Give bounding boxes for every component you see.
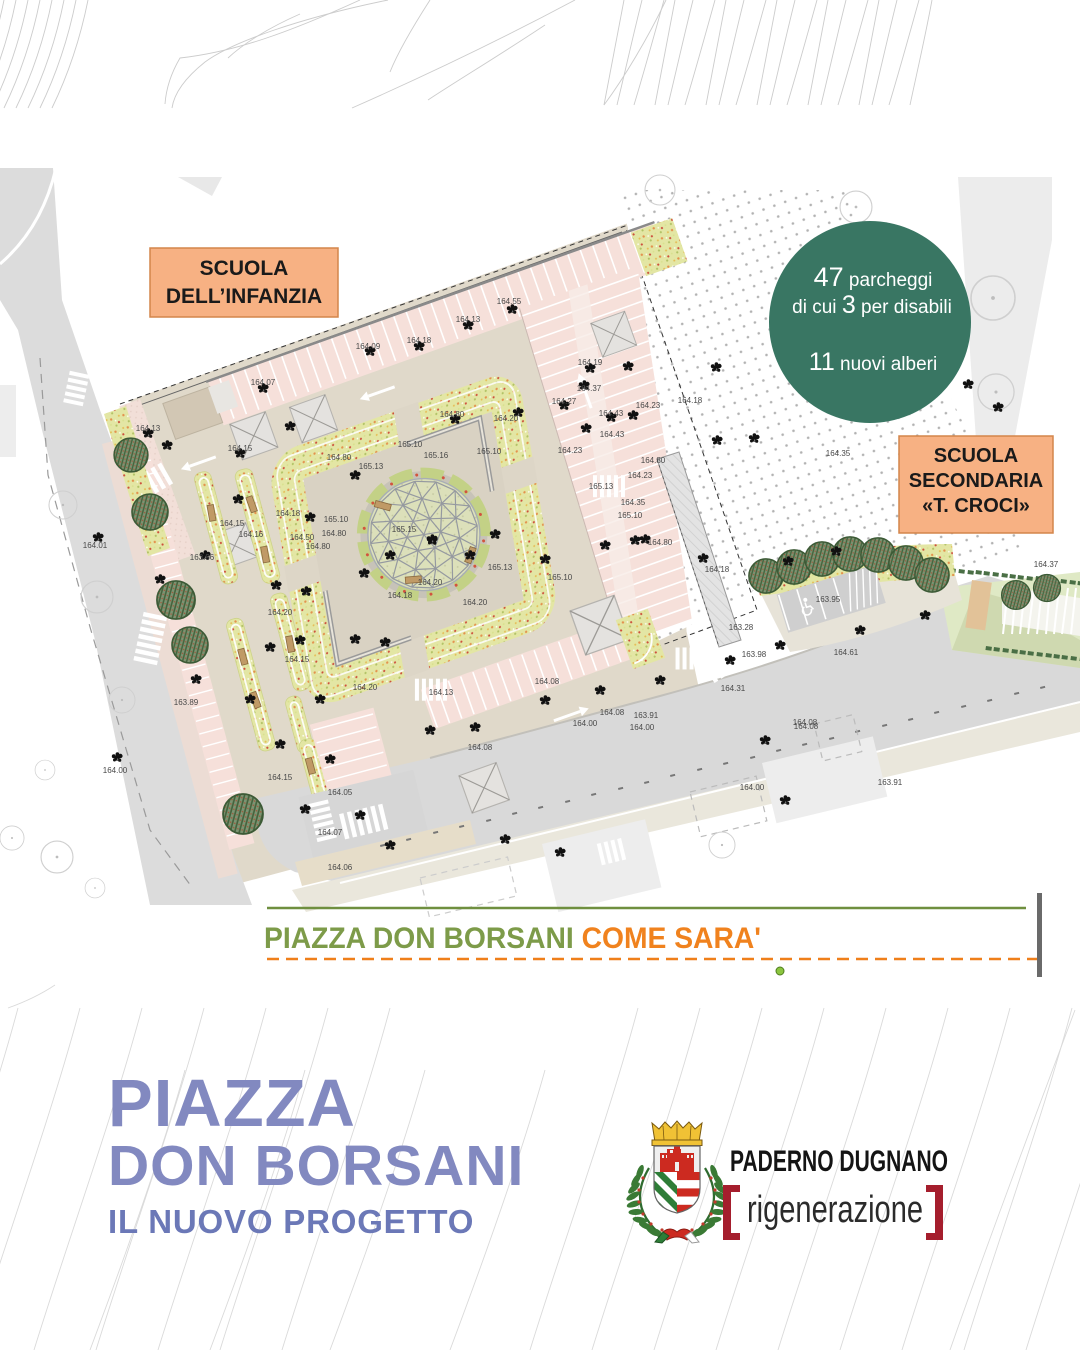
svg-text:163.96: 163.96 [190, 553, 215, 562]
svg-text:164.16: 164.16 [239, 530, 264, 539]
svg-text:164.23: 164.23 [558, 446, 583, 455]
svg-text:163.89: 163.89 [174, 698, 199, 707]
svg-text:165.13: 165.13 [589, 482, 614, 491]
svg-text:163.98: 163.98 [742, 650, 767, 659]
svg-text:164.08: 164.08 [600, 708, 625, 717]
svg-text:164.06: 164.06 [328, 863, 353, 872]
svg-text:164.08: 164.08 [535, 677, 560, 686]
svg-text:165.13: 165.13 [488, 563, 513, 572]
svg-text:164.23: 164.23 [636, 401, 661, 410]
svg-text:164.20: 164.20 [353, 683, 378, 692]
svg-text:164.13: 164.13 [456, 315, 481, 324]
svg-text:165.10: 165.10 [548, 573, 573, 582]
svg-text:164.00: 164.00 [740, 783, 765, 792]
svg-text:164.27: 164.27 [552, 397, 577, 406]
svg-text:164.13: 164.13 [429, 688, 454, 697]
svg-text:PADERNO DUGNANO: PADERNO DUGNANO [730, 1145, 948, 1178]
svg-text:164.07: 164.07 [318, 828, 343, 837]
svg-text:164.09: 164.09 [356, 342, 381, 351]
svg-text:164.43: 164.43 [600, 430, 625, 439]
svg-text:163.28: 163.28 [729, 623, 754, 632]
svg-text:164.20: 164.20 [418, 578, 443, 587]
svg-text:164.35: 164.35 [826, 449, 851, 458]
svg-text:164.15: 164.15 [285, 655, 310, 664]
svg-text:164.05: 164.05 [328, 788, 353, 797]
svg-text:164.80: 164.80 [306, 542, 331, 551]
svg-text:PIAZZA DON BORSANI COME SARA': PIAZZA DON BORSANI COME SARA' [264, 922, 761, 955]
svg-text:164.19: 164.19 [578, 358, 603, 367]
svg-text:«T. CROCI»: «T. CROCI» [922, 495, 1030, 517]
svg-text:164.15: 164.15 [220, 519, 245, 528]
svg-text:164.55: 164.55 [497, 297, 522, 306]
svg-text:164.18: 164.18 [407, 336, 432, 345]
svg-text:rigenerazione: rigenerazione [747, 1189, 923, 1231]
svg-text:164.35: 164.35 [621, 498, 646, 507]
svg-text:164.80: 164.80 [327, 453, 352, 462]
svg-text:164.61: 164.61 [834, 648, 859, 657]
svg-text:164.20: 164.20 [494, 414, 519, 423]
svg-text:165.10: 165.10 [477, 447, 502, 456]
svg-text:163.91: 163.91 [878, 778, 903, 787]
svg-text:164.20: 164.20 [268, 608, 293, 617]
svg-text:164.18: 164.18 [276, 509, 301, 518]
svg-text:164.18: 164.18 [705, 565, 730, 574]
svg-text:IL NUOVO PROGETTO: IL NUOVO PROGETTO [108, 1203, 474, 1240]
svg-text:164.18: 164.18 [678, 396, 703, 405]
svg-text:164.50: 164.50 [290, 533, 315, 542]
svg-text:164.80: 164.80 [322, 529, 347, 538]
svg-text:165.16: 165.16 [424, 451, 449, 460]
svg-text:SCUOLA: SCUOLA [200, 257, 289, 280]
svg-text:165.10: 165.10 [324, 515, 349, 524]
svg-text:164.23: 164.23 [628, 471, 653, 480]
svg-text:164.15: 164.15 [268, 773, 293, 782]
svg-text:164.00: 164.00 [103, 766, 128, 775]
svg-text:163.91: 163.91 [634, 711, 659, 720]
svg-text:164.08: 164.08 [468, 743, 493, 752]
svg-text:164.13: 164.13 [136, 424, 161, 433]
svg-text:DELL’INFANZIA: DELL’INFANZIA [166, 285, 322, 308]
svg-text:164.00: 164.00 [573, 719, 598, 728]
svg-text:164.80: 164.80 [440, 410, 465, 419]
svg-text:164.15: 164.15 [228, 444, 253, 453]
svg-text:164.80: 164.80 [648, 538, 673, 547]
svg-text:163.95: 163.95 [816, 595, 841, 604]
svg-text:165.10: 165.10 [398, 440, 423, 449]
svg-text:164.01: 164.01 [83, 541, 108, 550]
svg-text:164.37: 164.37 [577, 384, 602, 393]
svg-text:164.00: 164.00 [630, 723, 655, 732]
svg-text:SECONDARIA: SECONDARIA [909, 470, 1043, 492]
svg-text:SCUOLA: SCUOLA [934, 445, 1018, 467]
svg-text:164.20: 164.20 [463, 598, 488, 607]
svg-text:164.37: 164.37 [1034, 560, 1059, 569]
svg-text:164.80: 164.80 [641, 456, 666, 465]
svg-text:165.13: 165.13 [359, 462, 384, 471]
svg-text:DON BORSANI: DON BORSANI [108, 1134, 524, 1198]
svg-text:165.15: 165.15 [392, 525, 417, 534]
svg-text:165.10: 165.10 [618, 511, 643, 520]
svg-text:164.31: 164.31 [721, 684, 746, 693]
svg-text:164.08: 164.08 [793, 718, 818, 727]
svg-text:164.43: 164.43 [599, 409, 624, 418]
svg-text:164.18: 164.18 [388, 591, 413, 600]
svg-text:PIAZZA: PIAZZA [108, 1066, 356, 1141]
svg-text:164.07: 164.07 [251, 378, 276, 387]
